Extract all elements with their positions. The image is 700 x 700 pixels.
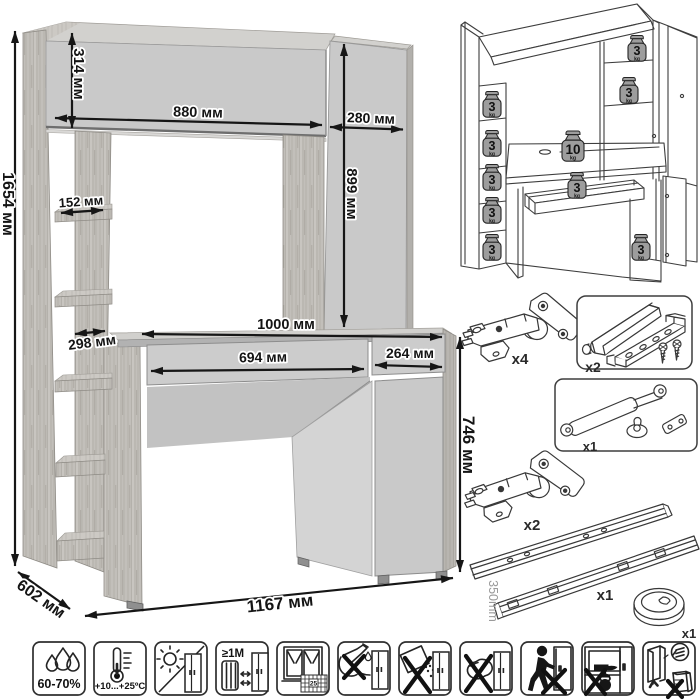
svg-text:899 мм: 899 мм	[343, 168, 360, 219]
svg-text:152 мм: 152 мм	[58, 192, 103, 210]
svg-text:880 мм: 880 мм	[173, 104, 223, 121]
svg-text:694 мм: 694 мм	[239, 349, 287, 366]
svg-text:314 мм: 314 мм	[70, 48, 87, 99]
svg-text:x4: x4	[512, 351, 529, 368]
svg-text:≥1M: ≥1M	[222, 648, 244, 660]
svg-text:x1: x1	[583, 439, 597, 454]
svg-text:x2: x2	[524, 517, 541, 534]
svg-text:350mm: 350mm	[486, 580, 500, 622]
svg-text:1654 мм: 1654 мм	[0, 172, 16, 236]
svg-text:264 мм: 264 мм	[386, 345, 434, 361]
svg-text:60-70%: 60-70%	[37, 677, 80, 691]
svg-text:x1: x1	[682, 626, 696, 641]
svg-text:x2: x2	[585, 359, 601, 375]
svg-text:280 мм: 280 мм	[347, 109, 395, 127]
svg-text:x1: x1	[597, 587, 614, 604]
svg-text:25: 25	[310, 681, 318, 688]
svg-text:+10...+25ºC: +10...+25ºC	[95, 681, 146, 692]
svg-text:1000 мм: 1000 мм	[257, 317, 315, 333]
svg-text:746 мм: 746 мм	[459, 416, 478, 474]
